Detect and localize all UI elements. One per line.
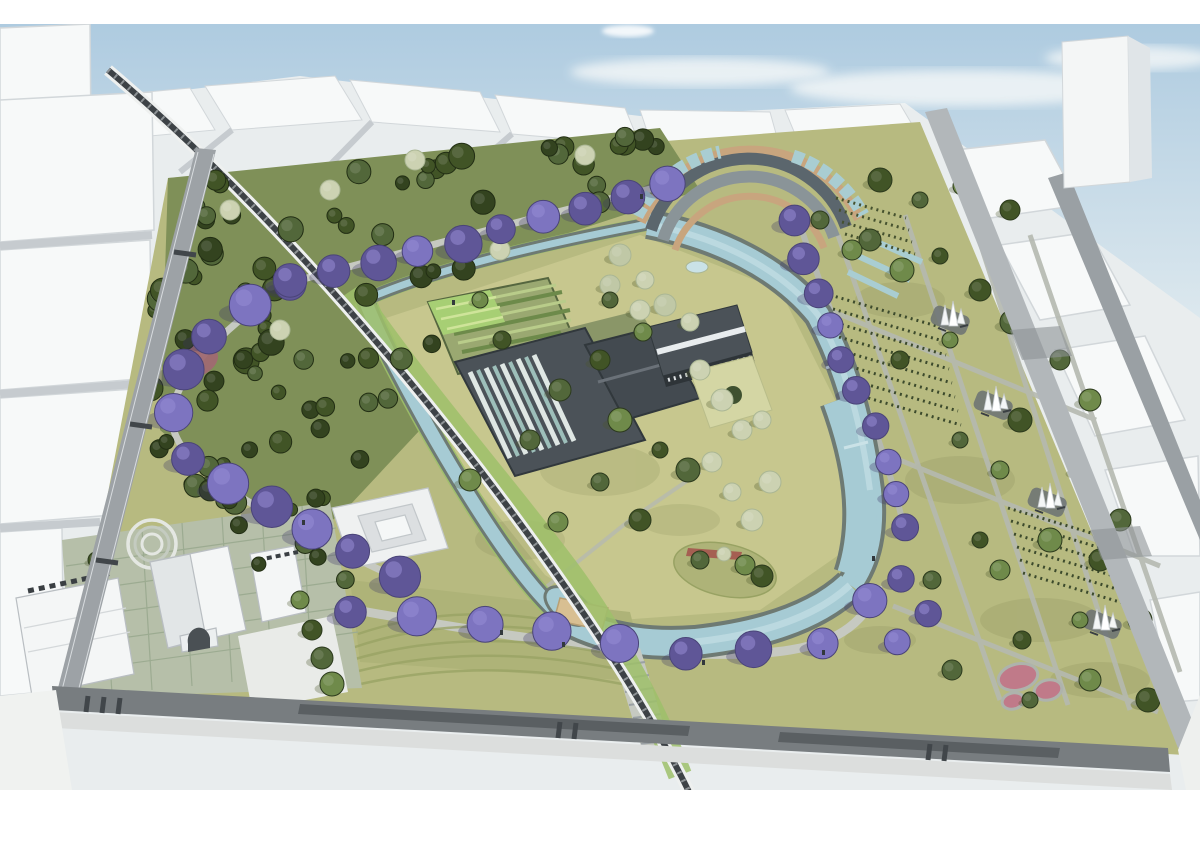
jacaranda-tree — [361, 245, 397, 281]
jacaranda-tree — [884, 481, 909, 506]
jacaranda-tree — [402, 236, 433, 267]
jacaranda-tree — [888, 566, 914, 592]
jacaranda-tree — [163, 349, 204, 390]
jacaranda-tree — [863, 413, 889, 439]
jacaranda-tree — [251, 486, 292, 527]
jacaranda-tree — [650, 166, 685, 201]
jacaranda-tree — [192, 319, 227, 354]
jacaranda-tree — [569, 192, 602, 225]
jacaranda-tree — [336, 534, 370, 568]
jacaranda-tree — [527, 200, 560, 233]
jacaranda-tree — [804, 279, 833, 308]
jacaranda-tree — [292, 509, 332, 549]
jacaranda-tree — [154, 393, 192, 431]
jacaranda-tree — [779, 205, 810, 236]
jacaranda-tree — [842, 377, 870, 405]
jacaranda-tree — [397, 597, 436, 636]
jacaranda-tree — [317, 255, 350, 288]
small-pond — [686, 261, 708, 273]
jacaranda-tree — [670, 637, 703, 670]
jacaranda-tree — [611, 180, 645, 214]
jacaranda-tree — [818, 313, 843, 338]
jacaranda-tree — [853, 583, 887, 617]
jacaranda-tree — [533, 612, 571, 650]
jacaranda-tree — [379, 556, 420, 597]
jacaranda-tree — [486, 215, 515, 244]
jacaranda-tree — [273, 264, 307, 298]
jacaranda-tree — [445, 225, 482, 262]
park-masterplan-rendering — [0, 0, 1200, 848]
jacaranda-tree — [735, 631, 772, 668]
jacaranda-tree — [828, 347, 854, 373]
bottom-margin — [0, 790, 1200, 848]
jacaranda-tree — [892, 514, 919, 541]
jacaranda-tree — [229, 284, 271, 326]
jacaranda-tree — [600, 624, 638, 662]
rendering-canvas: Bird's-eye rendering of a park surrounde… — [0, 0, 1200, 848]
tall-tower — [1062, 36, 1152, 188]
jacaranda-tree — [467, 606, 503, 642]
jacaranda-tree — [172, 442, 205, 475]
jacaranda-tree — [876, 449, 901, 474]
jacaranda-tree — [207, 463, 248, 504]
jacaranda-tree — [335, 596, 367, 628]
jacaranda-tree — [788, 243, 820, 275]
top-margin — [0, 0, 1200, 24]
jacaranda-tree — [915, 600, 941, 626]
jacaranda-tree — [884, 629, 910, 655]
